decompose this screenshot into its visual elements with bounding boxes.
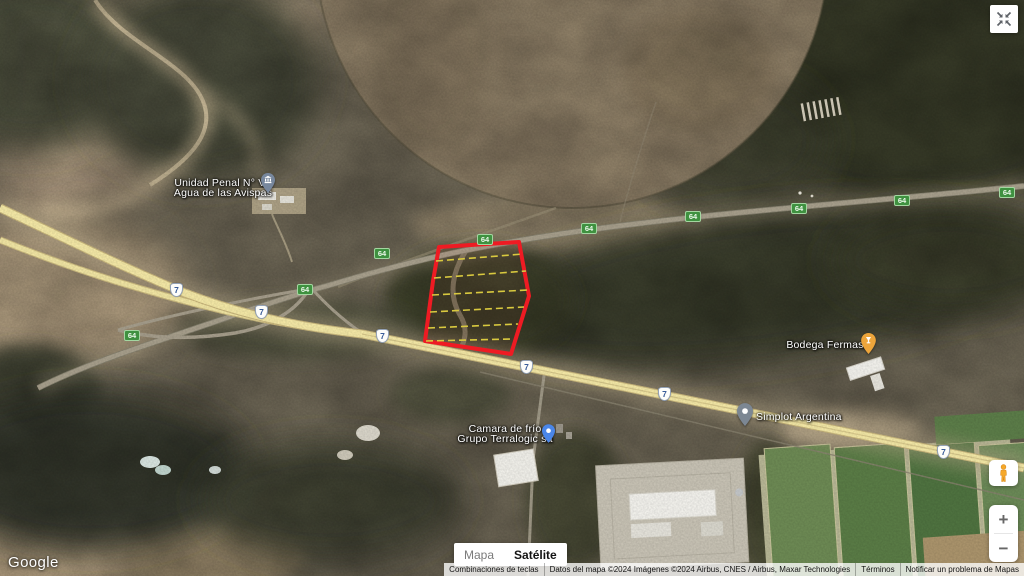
winery-pin-icon[interactable] [861, 333, 876, 354]
keyboard-shortcuts-link[interactable]: Combinaciones de teclas [444, 563, 543, 576]
map-type-map-button[interactable]: Mapa [454, 548, 504, 562]
pegman-button[interactable] [989, 460, 1018, 486]
gray-poi-pin-icon[interactable] [737, 403, 753, 426]
route-64-badge: 64 [894, 195, 910, 206]
government-building-pin-icon[interactable] [261, 173, 275, 193]
parcel-outline[interactable] [425, 242, 529, 354]
parcel-overlay [425, 242, 529, 354]
report-problem-link[interactable]: Notificar un problema de Mapas [900, 563, 1024, 576]
route-64-badge: 64 [581, 223, 597, 234]
route-64-badge: 64 [297, 284, 313, 295]
poi-simplot-label[interactable]: Simplot Argentina [756, 413, 842, 423]
route-64-badge: 64 [685, 211, 701, 222]
route-64-badge: 64 [124, 330, 140, 341]
route-64-badge: 64 [999, 187, 1015, 198]
poi-bodega-text: Bodega Fermasa [786, 341, 870, 351]
exit-fullscreen-icon [995, 10, 1013, 28]
route-64-badge: 64 [374, 248, 390, 259]
blue-poi-pin-icon[interactable] [542, 424, 555, 443]
zoom-in-button[interactable]: + [989, 505, 1018, 533]
terms-link[interactable]: Términos [855, 563, 899, 576]
route-64-badge: 64 [791, 203, 807, 214]
poi-simplot-text: Simplot Argentina [756, 413, 842, 423]
attribution-bar: Combinaciones de teclas Datos del mapa ©… [444, 563, 1024, 576]
google-logo[interactable]: Google [8, 554, 59, 571]
street-view-pegman-icon [997, 464, 1010, 483]
satellite-imagery [0, 0, 1024, 576]
poi-bodega-label[interactable]: Bodega Fermasa [786, 341, 870, 351]
route-64-badge: 64 [477, 234, 493, 245]
map-type-satellite-button[interactable]: Satélite [504, 548, 567, 562]
map-canvas[interactable]: 7 7 7 7 7 7 64 64 64 64 64 64 64 64 64 U… [0, 0, 1024, 576]
zoom-control: + − [989, 505, 1018, 562]
fullscreen-button[interactable] [990, 5, 1018, 33]
map-data-credit: Datos del mapa ©2024 Imágenes ©2024 Airb… [544, 563, 856, 576]
zoom-out-button[interactable]: − [989, 534, 1018, 562]
